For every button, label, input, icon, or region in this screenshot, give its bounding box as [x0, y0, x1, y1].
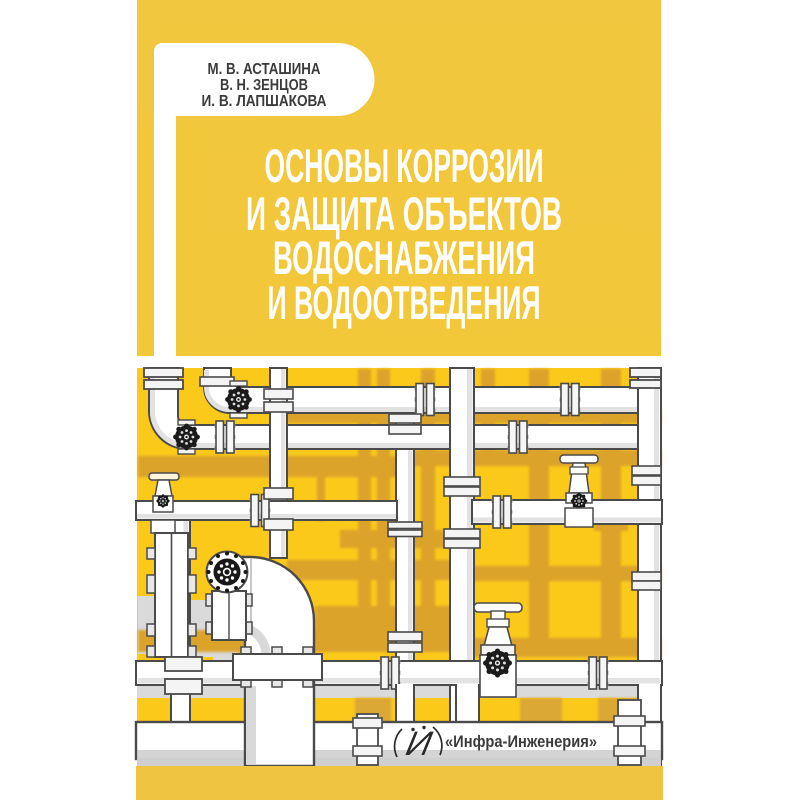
svg-text:И ВОДООТВЕДЕНИЯ: И ВОДООТВЕДЕНИЯ — [268, 276, 541, 329]
svg-text:В. Н. ЗЕНЦОВ: В. Н. ЗЕНЦОВ — [220, 77, 308, 94]
svg-text:ОСНОВЫ КОРРОЗИИ: ОСНОВЫ КОРРОЗИИ — [265, 139, 544, 192]
svg-text:И. В. ЛАПШАКОВА: И. В. ЛАПШАКОВА — [202, 93, 327, 110]
svg-text:«Инфра-Инженерия»: «Инфра-Инженерия» — [445, 733, 597, 751]
svg-text:М. В. АСТАШИНА: М. В. АСТАШИНА — [208, 61, 321, 78]
